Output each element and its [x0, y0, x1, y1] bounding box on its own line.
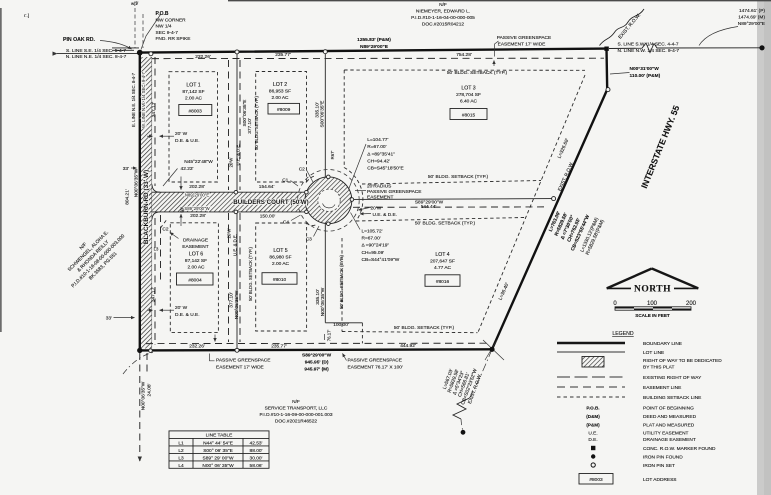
- svg-text:CONC. R.O.W. MARKER FOUND: CONC. R.O.W. MARKER FOUND: [643, 446, 716, 452]
- svg-text:2.00 AC: 2.00 AC: [271, 95, 289, 101]
- svg-text:RIGHT OF WAY TO BE DEDICATED: RIGHT OF WAY TO BE DEDICATED: [643, 358, 722, 364]
- svg-text:C3: C3: [306, 236, 312, 242]
- svg-text:50' BLDG. SETBACK (TYP.): 50' BLDG. SETBACK (TYP.): [415, 220, 476, 226]
- svg-text:r:.]: r:.]: [24, 13, 29, 18]
- svg-text:444.92': 444.92': [400, 343, 416, 349]
- svg-text:33': 33': [123, 166, 129, 172]
- svg-text:50' BLDG. SETBACK (TYP.): 50' BLDG. SETBACK (TYP.): [254, 95, 259, 150]
- svg-text:24.08': 24.08': [146, 383, 152, 396]
- svg-text:EASEMENT 17' WIDE: EASEMENT 17' WIDE: [216, 365, 264, 371]
- svg-text:232.26': 232.26': [195, 54, 211, 60]
- svg-text:#8010: #8010: [273, 277, 287, 283]
- svg-text:CB=S45°18'50"E: CB=S45°18'50"E: [367, 166, 403, 172]
- svg-text:LOT LINE: LOT LINE: [643, 350, 664, 356]
- svg-text:PASSIVE GREENSPACE: PASSIVE GREENSPACE: [348, 358, 402, 364]
- svg-text:W. LINE N.W. 1/4 SEC. 9-4-7: W. LINE N.W. 1/4 SEC. 9-4-7: [141, 71, 146, 127]
- svg-text:278,704 SF: 278,704 SF: [456, 92, 481, 98]
- svg-text:SERVICE TRANSPORT, LLC: SERVICE TRANSPORT, LLC: [265, 406, 328, 412]
- svg-text:SCALE IN FEET: SCALE IN FEET: [635, 313, 670, 318]
- svg-text:S00°06'35"E: S00°06'35"E: [320, 101, 326, 128]
- svg-text:87,142 SF: 87,142 SF: [185, 258, 207, 264]
- svg-text:154.64': 154.64': [259, 184, 275, 190]
- svg-text:N44° 44' 54"E: N44° 44' 54"E: [203, 440, 233, 446]
- svg-text:76.17': 76.17': [326, 330, 331, 342]
- svg-text:SEC 9-4-7: SEC 9-4-7: [156, 30, 179, 36]
- svg-text:88.00': 88.00': [250, 448, 263, 454]
- svg-text:N/F: N/F: [292, 399, 300, 405]
- svg-text:100: 100: [647, 301, 658, 307]
- svg-text:DOC.#2021R46522: DOC.#2021R46522: [275, 419, 317, 425]
- svg-text:PIN OAK RD.: PIN OAK RD.: [63, 37, 96, 43]
- svg-text:235.77': 235.77': [271, 343, 287, 349]
- svg-text:2.00 AC: 2.00 AC: [272, 261, 290, 267]
- svg-text:L2: L2: [178, 448, 184, 454]
- svg-text:CB=S44°41'09"W: CB=S44°41'09"W: [362, 257, 400, 263]
- svg-text:20' W: 20' W: [175, 131, 188, 137]
- svg-text:CH=94.42': CH=94.42': [367, 159, 390, 165]
- svg-text:207,647 SF: 207,647 SF: [430, 259, 455, 265]
- svg-text:1474.69' (M): 1474.69' (M): [738, 14, 765, 20]
- svg-text:LEGEND: LEGEND: [612, 331, 634, 337]
- svg-text:U.E. & D.E.: U.E. & D.E.: [373, 212, 398, 218]
- svg-text:BY THIS PLAT: BY THIS PLAT: [643, 365, 675, 371]
- svg-text:1255.83' (P&M): 1255.83' (P&M): [357, 37, 391, 43]
- svg-text:BOUNDARY LINE: BOUNDARY LINE: [643, 341, 682, 347]
- svg-text:377.10': 377.10': [247, 118, 253, 134]
- svg-text:6.40 AC: 6.40 AC: [460, 99, 478, 105]
- svg-text:754.28': 754.28': [456, 52, 472, 58]
- svg-text:PLAT AND MEASURED: PLAT AND MEASURED: [643, 423, 695, 429]
- svg-text:347.17': 347.17': [151, 102, 157, 118]
- svg-text:LINE TABLE: LINE TABLE: [206, 433, 233, 439]
- svg-text:C4: C4: [283, 219, 289, 225]
- svg-text:N00°06'35"W: N00°06'35"W: [141, 381, 147, 410]
- svg-text:FND. RR SPIKE: FND. RR SPIKE: [156, 36, 191, 42]
- svg-text:544.44': 544.44': [421, 204, 437, 210]
- svg-text:IRON PIN SET: IRON PIN SET: [643, 463, 675, 469]
- svg-text:Δ =90°24'19": Δ =90°24'19": [362, 243, 390, 249]
- svg-text:20'W: 20'W: [226, 228, 231, 239]
- svg-text:LOT 5: LOT 5: [273, 248, 287, 254]
- svg-text:NIEMEYER, EDWARD L.: NIEMEYER, EDWARD L.: [416, 9, 470, 15]
- svg-text:202.28': 202.28': [189, 184, 205, 190]
- svg-text:L4: L4: [178, 463, 184, 469]
- svg-text:LOT 1: LOT 1: [186, 83, 200, 89]
- svg-text:CH=95.09': CH=95.09': [362, 250, 385, 256]
- svg-text:4.77 AC: 4.77 AC: [434, 265, 452, 271]
- svg-text:P.O.B.: P.O.B.: [586, 406, 599, 411]
- svg-text:#8004: #8004: [188, 277, 202, 283]
- svg-text:P.I.D.#10-1-16-09-00-000-001.0: P.I.D.#10-1-16-09-00-000-001.003: [260, 412, 333, 418]
- svg-text:58.06': 58.06': [250, 463, 263, 469]
- svg-text:50' BLDG. SETBACK (TYP.): 50' BLDG. SETBACK (TYP.): [339, 254, 344, 309]
- svg-text:50' BLDG. SETBACK (TYP.): 50' BLDG. SETBACK (TYP.): [428, 174, 489, 180]
- svg-text:BUILDERS COURT (50'W): BUILDERS COURT (50'W): [233, 199, 308, 206]
- svg-text:L1: L1: [178, 440, 184, 446]
- svg-text:N89°29'00"E: N89°29'00"E: [360, 44, 389, 50]
- svg-text:2.00 AC: 2.00 AC: [185, 96, 203, 102]
- svg-text:L3: L3: [154, 247, 159, 252]
- svg-text:BLACKBURN RD (33' W): BLACKBURN RD (33' W): [143, 170, 150, 244]
- svg-text:PASSIVE GREENSPACE: PASSIVE GREENSPACE: [367, 189, 421, 195]
- svg-text:C1: C1: [282, 177, 288, 183]
- svg-text:S89°29'00"W: S89°29'00"W: [184, 206, 210, 211]
- svg-text:L3: L3: [178, 455, 184, 461]
- svg-text:#8015: #8015: [462, 112, 476, 118]
- svg-text:50': 50': [179, 207, 184, 213]
- svg-text:N89°29'00"E: N89°29'00"E: [185, 192, 210, 197]
- svg-text:20'RADIUS: 20'RADIUS: [367, 183, 391, 189]
- svg-text:20'W: 20'W: [371, 206, 382, 212]
- svg-text:U.E. & D.E.: U.E. & D.E.: [236, 144, 241, 166]
- svg-text:P.I.D.#10-1-16-04-00-000-005: P.I.D.#10-1-16-04-00-000-005: [411, 15, 475, 21]
- svg-text:S00° 06' 35"E: S00° 06' 35"E: [203, 448, 233, 454]
- svg-text:150.00': 150.00': [260, 213, 276, 219]
- svg-text:S89°29'00"W: S89°29'00"W: [302, 353, 332, 359]
- svg-text:EASEMENT: EASEMENT: [182, 244, 208, 250]
- svg-text:LOT 2: LOT 2: [273, 82, 287, 88]
- svg-text:N89°29'00"E: N89°29'00"E: [738, 21, 765, 27]
- svg-text:S. LINE S.W. 1/4 SEC. 4-4-7: S. LINE S.W. 1/4 SEC. 4-4-7: [618, 42, 679, 48]
- svg-text:(P&M): (P&M): [586, 423, 600, 428]
- svg-text:S. LINE S.E. 1/4 SEC. 5-4-7: S. LINE S.E. 1/4 SEC. 5-4-7: [66, 48, 126, 54]
- svg-text:DRAINAGE EASEMENT: DRAINAGE EASEMENT: [643, 437, 696, 443]
- svg-text:LOT 6: LOT 6: [189, 252, 203, 258]
- svg-text:P.O.B: P.O.B: [156, 11, 169, 17]
- svg-text:NORTH: NORTH: [634, 285, 671, 295]
- svg-text:347.17': 347.17': [151, 287, 157, 303]
- svg-text:UTILITY EASEMENT: UTILITY EASEMENT: [643, 431, 689, 437]
- svg-text:235.77': 235.77': [275, 52, 291, 58]
- svg-text:IRON PIN FOUND: IRON PIN FOUND: [643, 455, 683, 461]
- svg-text:U.E.: U.E.: [588, 431, 597, 437]
- svg-text:50' BLDG. SETBACK (TYP.): 50' BLDG. SETBACK (TYP.): [248, 246, 253, 301]
- svg-text:377.10': 377.10': [229, 292, 235, 308]
- svg-text:86,980 SF: 86,980 SF: [269, 255, 291, 261]
- svg-text:N00°31'00"W: N00°31'00"W: [630, 66, 660, 72]
- svg-text:N/F: N/F: [439, 2, 447, 8]
- svg-text:LOT ADDRESS: LOT ADDRESS: [643, 477, 677, 483]
- svg-text:N00°06'35"W: N00°06'35"W: [320, 287, 326, 316]
- svg-text:50' BLDG. SETBACK (TYP.): 50' BLDG. SETBACK (TYP.): [447, 70, 508, 76]
- svg-text:945.97' (M): 945.97' (M): [304, 367, 329, 373]
- svg-text:1474.61' (P): 1474.61' (P): [739, 8, 765, 14]
- svg-text:DEED AND MEASURED: DEED AND MEASURED: [643, 414, 697, 420]
- svg-text:EASEMENT 17' WIDE: EASEMENT 17' WIDE: [498, 42, 546, 48]
- svg-text:POINT OF BEGINNING: POINT OF BEGINNING: [643, 406, 694, 412]
- svg-text:200: 200: [686, 301, 697, 307]
- svg-text:232.26': 232.26': [189, 344, 205, 350]
- svg-text:N00°06'35"W: N00°06'35"W: [134, 168, 140, 197]
- svg-text:N00° 06' 35"W: N00° 06' 35"W: [202, 463, 234, 469]
- svg-text:100.00': 100.00': [333, 322, 349, 328]
- svg-text:42.53': 42.53': [250, 440, 263, 446]
- svg-text:L=105.72': L=105.72': [362, 228, 383, 234]
- svg-text:Δ =89°35'41": Δ =89°35'41": [367, 151, 395, 157]
- svg-text:LOT 3: LOT 3: [461, 86, 475, 92]
- svg-text:33': 33': [106, 316, 112, 322]
- svg-text:30.00': 30.00': [250, 455, 263, 461]
- svg-text:N00°06'35"W: N00°06'35"W: [234, 290, 240, 319]
- svg-text:N45°22'48"W: N45°22'48"W: [184, 159, 213, 165]
- svg-text:945.95' (D): 945.95' (D): [305, 360, 329, 366]
- svg-text:C2: C2: [299, 167, 305, 173]
- svg-text:86,953 SF: 86,953 SF: [269, 89, 291, 95]
- svg-text:2.00 AC: 2.00 AC: [187, 265, 205, 271]
- svg-text:EASEMENT: EASEMENT: [367, 194, 393, 200]
- svg-text:50' BLDG. SETBACK (TYP.): 50' BLDG. SETBACK (TYP.): [394, 325, 455, 331]
- svg-text:(D&M): (D&M): [586, 414, 600, 419]
- svg-text:w|℣: w|℣: [131, 1, 138, 6]
- svg-text:R=67.00': R=67.00': [362, 236, 381, 242]
- svg-text:NW 1/4: NW 1/4: [156, 24, 172, 30]
- svg-text:804.21': 804.21': [125, 189, 131, 205]
- svg-text:#8003: #8003: [189, 108, 203, 114]
- svg-text:D.E. & U.E.: D.E. & U.E.: [175, 312, 200, 318]
- svg-text:#8016: #8016: [436, 279, 450, 285]
- svg-text:NW CORNER: NW CORNER: [156, 17, 187, 23]
- svg-text:42.23': 42.23': [181, 166, 194, 172]
- svg-text:#8003: #8003: [589, 477, 603, 483]
- svg-text:U.E. & D.E.: U.E. & D.E.: [233, 234, 238, 256]
- svg-text:20' W: 20' W: [175, 305, 188, 311]
- svg-text:20'W: 20'W: [228, 157, 233, 168]
- svg-text:87,142 SF: 87,142 SF: [182, 89, 204, 95]
- svg-text:L=104.77': L=104.77': [367, 137, 388, 143]
- svg-text:PASSIVE GREENSPACE: PASSIVE GREENSPACE: [216, 358, 270, 364]
- svg-text:S89° 29' 00"W: S89° 29' 00"W: [203, 455, 234, 461]
- svg-text:#8009: #8009: [277, 107, 291, 113]
- svg-text:EXISTING RIGHT OF WAY: EXISTING RIGHT OF WAY: [643, 375, 702, 381]
- svg-text:E. LINE N.E. 1/4 SEC. 8-4-7: E. LINE N.E. 1/4 SEC. 8-4-7: [131, 72, 136, 127]
- svg-text:C2: C2: [162, 226, 168, 232]
- svg-text:N. LINE N.E. 1/4 SEC. 8-4-7: N. LINE N.E. 1/4 SEC. 8-4-7: [66, 54, 127, 60]
- svg-text:DOC.#2015R04212: DOC.#2015R04212: [422, 22, 464, 28]
- svg-text:EASEMENT 76.17' X 100': EASEMENT 76.17' X 100': [348, 365, 403, 371]
- svg-text:R=67.00': R=67.00': [367, 144, 386, 150]
- svg-text:PASSIVE GREENSPACE: PASSIVE GREENSPACE: [497, 35, 551, 41]
- svg-text:DRAINAGE: DRAINAGE: [183, 238, 208, 244]
- svg-text:LOT 4: LOT 4: [435, 252, 449, 258]
- svg-text:202.28': 202.28': [190, 213, 206, 219]
- svg-text:D.E.: D.E.: [588, 437, 597, 443]
- svg-text:R67': R67': [330, 150, 335, 159]
- svg-text:EASEMENT LINE: EASEMENT LINE: [643, 385, 681, 391]
- svg-text:D.E. & U.E.: D.E. & U.E.: [175, 138, 200, 144]
- svg-text:N. LINE N.W. 1/4 SEC. 9-4-7: N. LINE N.W. 1/4 SEC. 9-4-7: [618, 48, 680, 54]
- svg-text:110.00' (P&M): 110.00' (P&M): [630, 73, 661, 79]
- svg-text:BUILDING SETBACK LINE: BUILDING SETBACK LINE: [643, 395, 701, 401]
